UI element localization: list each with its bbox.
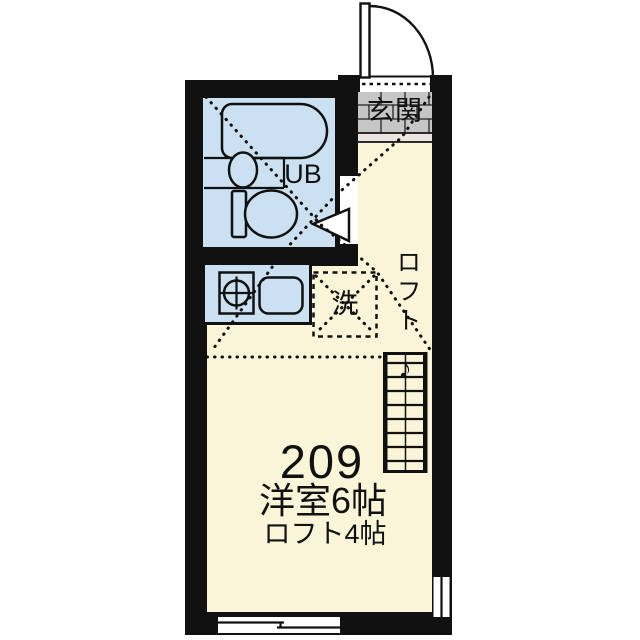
entrance-door xyxy=(361,4,434,79)
wall-door-pillar xyxy=(338,75,360,96)
loft-label: ロフト xyxy=(394,246,419,338)
wall-top xyxy=(185,80,360,96)
floor-plan: 209 洋室6帖 ロフト4帖 玄関 UB 洗 ロフト ♪ xyxy=(0,0,640,640)
door-leaf xyxy=(361,4,370,78)
door-swing-arc xyxy=(370,6,434,78)
wall-right xyxy=(430,75,452,635)
entrance-step xyxy=(358,133,432,142)
ladder-up-arrow-icon: ♪ xyxy=(392,355,418,382)
room-size-label: 洋室6帖 xyxy=(223,483,423,519)
washing-machine-label: 洗 xyxy=(320,291,370,318)
unit-bath-label: UB xyxy=(277,161,329,188)
toilet xyxy=(232,191,297,238)
window-bottom xyxy=(218,617,340,633)
loft-size-label: ロフト4帖 xyxy=(225,521,425,548)
washbasin xyxy=(229,153,257,188)
room-number-label: 209 xyxy=(222,438,422,485)
window-right xyxy=(434,577,450,617)
kitchen-counter xyxy=(204,264,311,324)
entrance-label: 玄関 xyxy=(358,98,432,125)
